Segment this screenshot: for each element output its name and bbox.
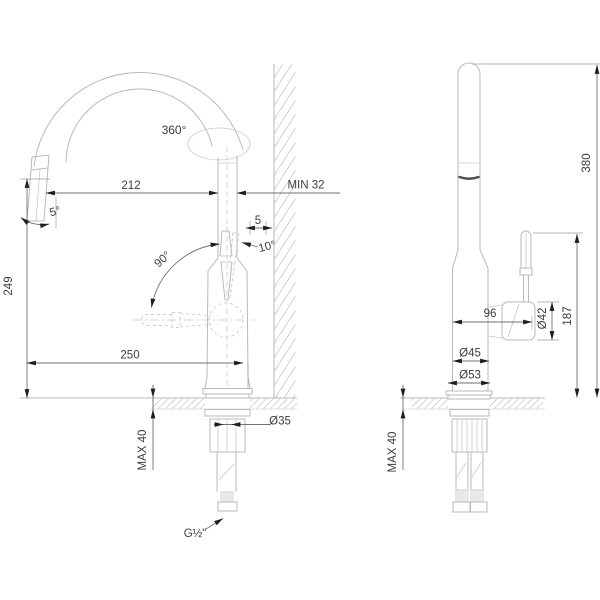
nozzle-band-top — [32, 155, 49, 157]
handle-swing-label: 90° — [153, 249, 174, 270]
counter-hatch-left — [152, 399, 205, 410]
wall-min-label: MIN 32 — [287, 180, 324, 192]
dim-base-diameter: Ø53 — [448, 370, 490, 384]
column — [458, 63, 480, 250]
handle-top-height-label: 187 — [562, 306, 574, 325]
base-flange-lip-side — [448, 395, 490, 399]
spout-reach-label: 212 — [121, 180, 140, 192]
swivel-angle-label: 360° — [162, 123, 187, 137]
body-depth-label: 96 — [484, 308, 497, 320]
overall-depth-label: 250 — [120, 350, 139, 362]
shoulder-left-side — [453, 250, 459, 268]
side-dimensions: 380 187 96 Ø42 — [387, 64, 600, 472]
handle-diameter-label: Ø42 — [537, 308, 549, 330]
drawing-canvas: 360° 249 212 MIN 32 5° — [0, 0, 600, 600]
dim-wall-gap: 5 — [246, 215, 272, 235]
counter-hatch-side-right — [490, 399, 543, 410]
handle-hub — [502, 302, 535, 340]
wall-section — [274, 64, 296, 398]
counter-section-front — [20, 398, 297, 409]
counter-hatch-side-left — [412, 399, 448, 410]
dim-overall-depth: 250 — [27, 350, 248, 390]
dim-overall-height: 380 — [472, 64, 600, 398]
shoulder-right — [237, 258, 247, 271]
dim-body-depth: 96 — [453, 308, 532, 329]
nozzle-right — [44, 168, 48, 221]
wall-gap-label: 5 — [255, 215, 261, 227]
shank-diameter-label: Ø35 — [269, 416, 291, 428]
faucet-technical-drawing: 360° 249 212 MIN 32 5° — [0, 0, 600, 600]
deck-max-front-label: MAX 40 — [137, 430, 149, 471]
base-flare-left — [205, 377, 207, 388]
base-diameter-label: Ø53 — [459, 370, 481, 382]
shoulder-right-side — [480, 250, 488, 268]
spout-height-label: 249 — [3, 276, 15, 295]
dim-handle-swing: 90° — [152, 244, 220, 308]
base-flange — [203, 389, 252, 395]
body-left — [207, 271, 208, 377]
dim-spout-reach: 212 — [46, 180, 218, 193]
shoulder-left — [208, 258, 218, 271]
body-diameter-label: Ø45 — [459, 348, 481, 360]
spout-outer-arc — [34, 72, 243, 166]
overall-height-label: 380 — [581, 153, 593, 172]
spout-inner-arc — [66, 89, 212, 162]
body-right — [247, 271, 248, 377]
spout-tilt-label: 5° — [48, 205, 62, 219]
deck-max-side-label: MAX 40 — [387, 432, 399, 473]
dim-spout-height: 249 — [3, 179, 50, 398]
dim-handle-tilt: 10° — [242, 239, 277, 255]
undercounter-side — [450, 410, 489, 513]
base-flange-lip — [206, 394, 249, 398]
nozzle-band-right — [48, 155, 49, 168]
side-view: 380 187 96 Ø42 — [387, 63, 600, 512]
nozzle-inner-line — [36, 169, 40, 221]
column-shadow-band — [460, 177, 479, 179]
dim-wall-min: MIN 32 — [237, 180, 340, 194]
nozzle-band-left — [31, 157, 32, 170]
counter-hatch-right — [250, 399, 297, 410]
front-view: 360° 249 212 MIN 32 5° — [3, 64, 340, 540]
handle-lever-up — [220, 231, 232, 300]
wall-hatch — [275, 64, 296, 398]
base-flange-side — [446, 391, 492, 395]
dim-handle-diameter: Ø42 — [537, 302, 559, 340]
faucet-side — [446, 63, 535, 512]
dim-body-diameter: Ø45 — [453, 348, 489, 362]
handle-side — [488, 231, 535, 340]
nozzle-band-bottom — [31, 168, 48, 170]
dim-thread-size: G½" — [184, 519, 223, 541]
nozzle-left — [27, 170, 31, 221]
counter-section-side — [400, 398, 545, 409]
thread-size-label: G½" — [184, 528, 207, 540]
